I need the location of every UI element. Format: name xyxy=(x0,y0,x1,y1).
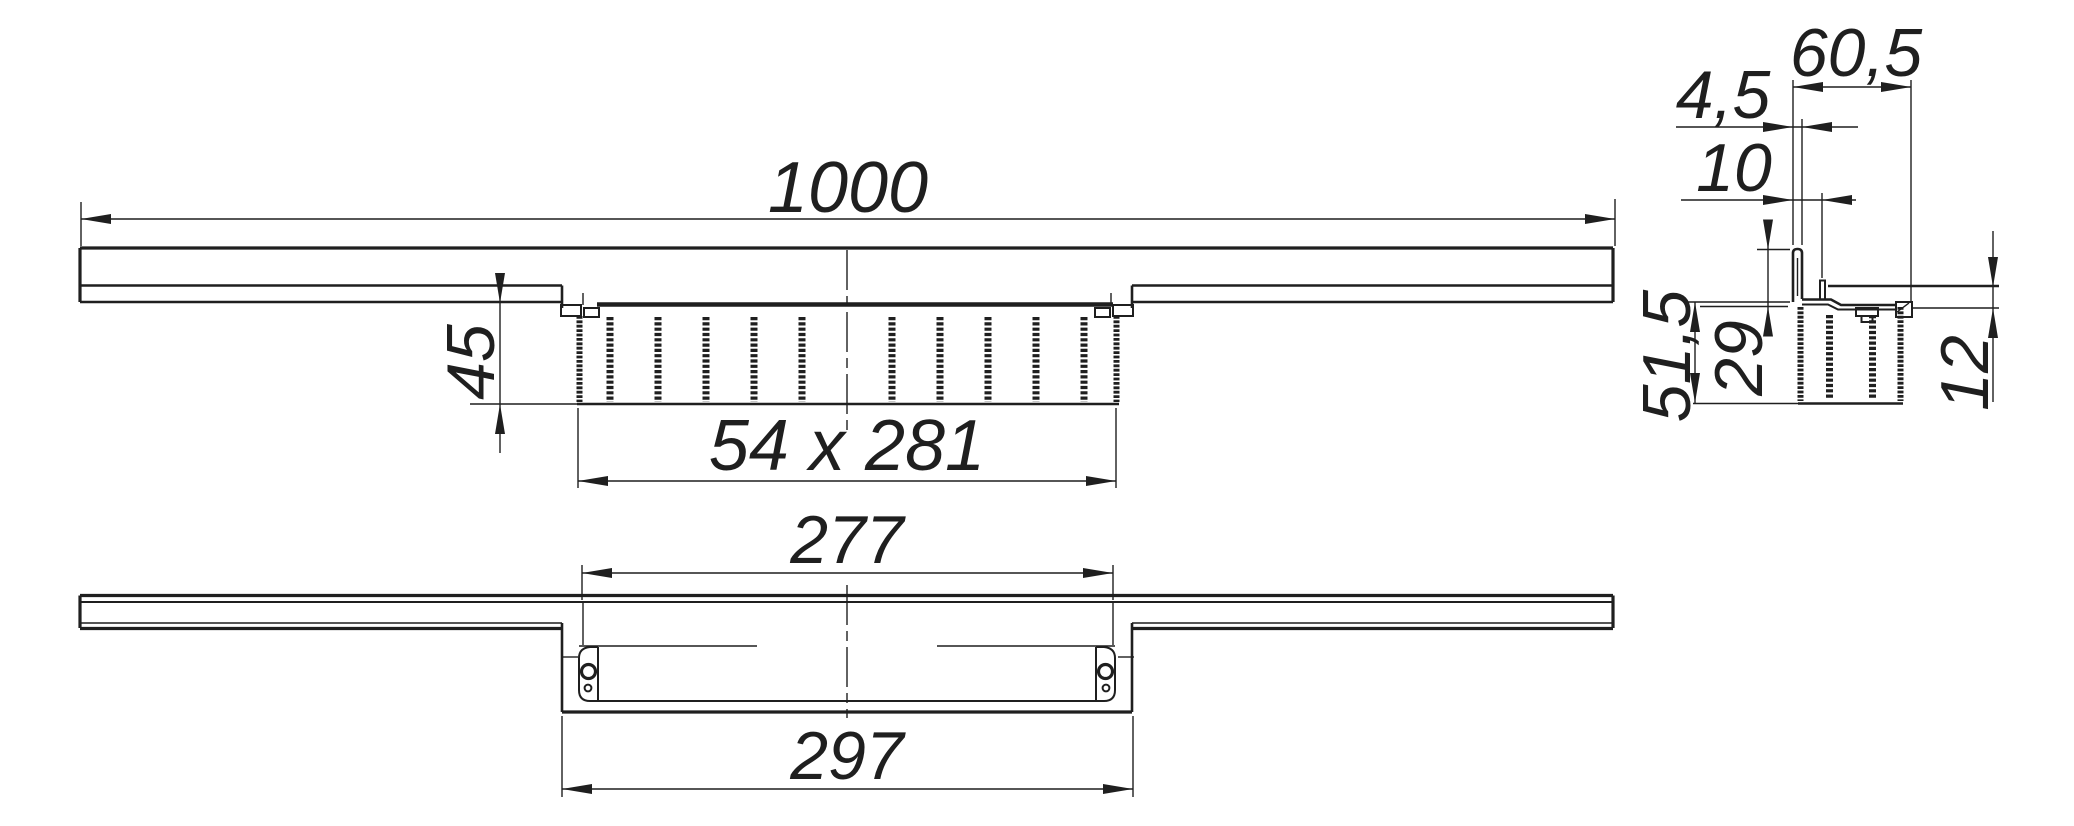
fixing-clip-stem xyxy=(1862,316,1873,322)
front-view: 1000 45 54 x 281 xyxy=(80,148,1615,488)
dimension-outer-width: 297 xyxy=(562,716,1133,797)
screw-hole-large xyxy=(1099,665,1113,679)
dim-label-outer-width: 297 xyxy=(789,718,906,794)
arrowhead xyxy=(495,404,505,434)
end-plate-right xyxy=(1096,647,1134,701)
fixing-clip-left xyxy=(561,305,581,316)
dim-label-edge-drop: 12 xyxy=(1927,335,2003,411)
drawing-canvas: 1000 45 54 x 281 xyxy=(0,0,2074,826)
dimension-perforation-field: 54 x 281 xyxy=(578,406,1116,488)
arrowhead xyxy=(1086,476,1116,486)
dim-label-upstand-height: 29 xyxy=(1701,320,1777,397)
arrowhead xyxy=(495,273,505,303)
edge-profile xyxy=(1793,249,1999,317)
dim-label-overall-length: 1000 xyxy=(768,148,928,228)
bottom-view: 277 297 xyxy=(80,502,1613,797)
arrowhead xyxy=(1083,568,1113,578)
dim-label-flange-width: 60,5 xyxy=(1790,15,1923,91)
arrowhead xyxy=(81,214,111,224)
fixing-clip-left-inner xyxy=(584,308,599,317)
screw-hole-small xyxy=(1103,685,1110,692)
section-view: 60,5 4,5 10 51,5 xyxy=(1629,15,2003,422)
arrowhead xyxy=(1763,220,1773,250)
screw-hole-small xyxy=(585,685,592,692)
arrowhead xyxy=(1988,308,1998,338)
dimension-upstand-height: 29 xyxy=(1700,220,1790,397)
screw-hole-large xyxy=(582,665,596,679)
dimension-flange-width: 60,5 xyxy=(1790,15,1923,301)
dim-label-tray-depth: 45 xyxy=(433,324,509,400)
arrowhead xyxy=(1103,784,1133,794)
anchor-hook xyxy=(1820,281,1825,301)
dim-label-perforation-field: 54 x 281 xyxy=(709,406,985,486)
dim-label-upstand-thickness: 4,5 xyxy=(1676,57,1771,133)
dim-label-hook-offset: 10 xyxy=(1696,130,1772,206)
fixing-clip-right-inner xyxy=(1095,308,1110,317)
dimension-tray-depth: 45 xyxy=(433,273,577,453)
dimension-overall-length: 1000 xyxy=(81,148,1615,246)
arrowhead xyxy=(1585,214,1615,224)
arrowhead xyxy=(1988,257,1998,287)
arrowhead xyxy=(1822,195,1852,205)
technical-drawing: 1000 45 54 x 281 xyxy=(0,0,2074,826)
arrowhead xyxy=(578,476,608,486)
arrowhead xyxy=(562,784,592,794)
arrowhead xyxy=(582,568,612,578)
fixing-clip-right xyxy=(1113,305,1133,316)
dim-label-body-height: 51,5 xyxy=(1629,290,1705,423)
arrowhead xyxy=(1802,122,1832,132)
dimension-edge-drop: 12 xyxy=(1912,231,2003,411)
end-plate-left xyxy=(562,647,598,701)
dim-label-inner-width: 277 xyxy=(789,502,906,578)
